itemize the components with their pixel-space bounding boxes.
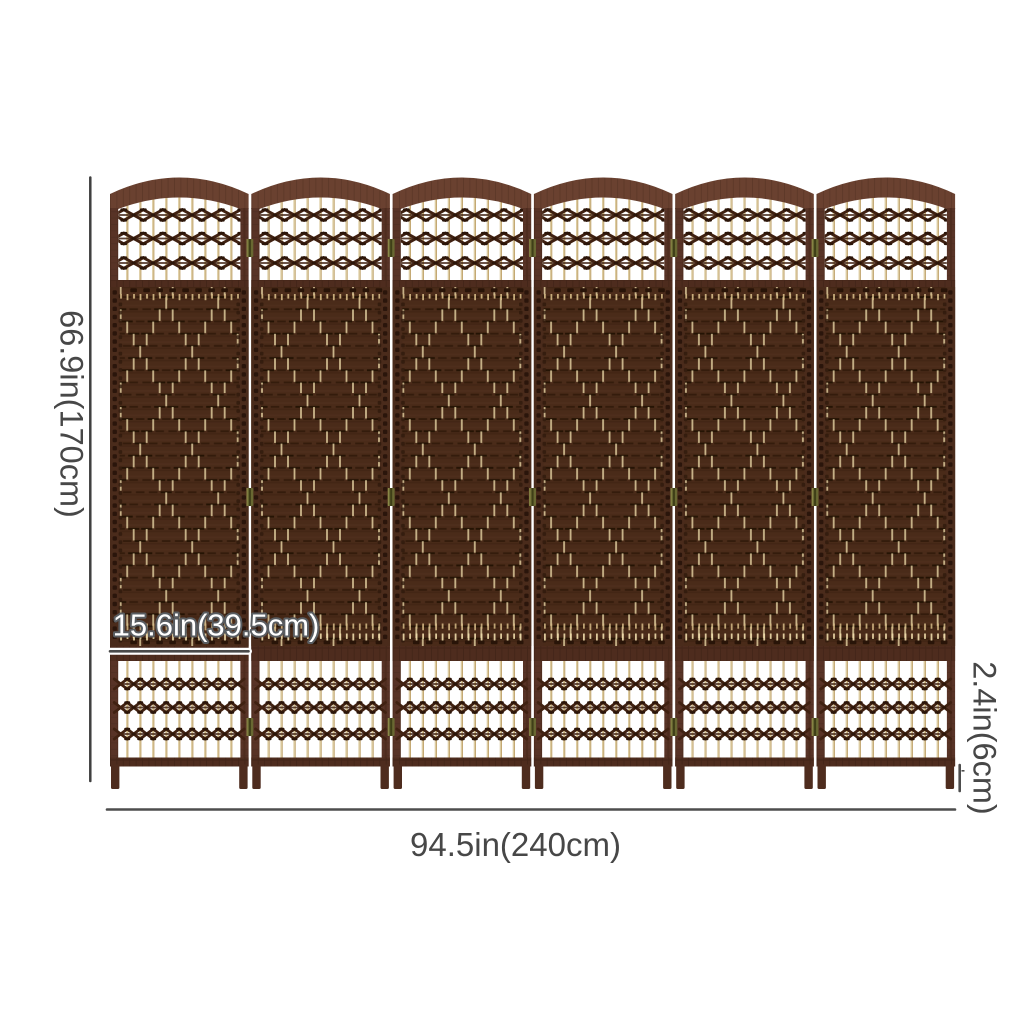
- svg-text:2.4in(6cm): 2.4in(6cm): [967, 661, 1003, 815]
- svg-text:94.5in(240cm): 94.5in(240cm): [410, 826, 621, 863]
- svg-text:66.9in(170cm): 66.9in(170cm): [54, 310, 90, 518]
- svg-text:15.6in(39.5cm): 15.6in(39.5cm): [113, 608, 320, 643]
